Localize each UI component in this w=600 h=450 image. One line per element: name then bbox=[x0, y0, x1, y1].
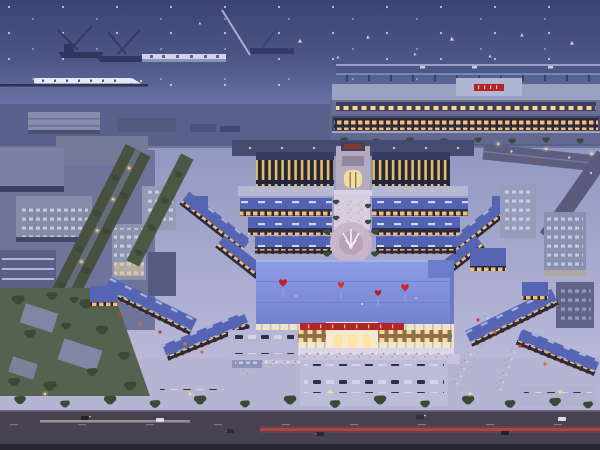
parking-row bbox=[232, 334, 294, 340]
colonnade-left bbox=[256, 152, 334, 190]
gate-arch-glow bbox=[344, 170, 362, 188]
car bbox=[558, 417, 566, 421]
car bbox=[81, 416, 89, 420]
gate-tower bbox=[332, 142, 374, 196]
terminal-arcade bbox=[334, 118, 598, 130]
market-hall-rows-right bbox=[372, 198, 468, 254]
parking-row bbox=[304, 392, 444, 398]
car bbox=[416, 415, 424, 419]
main-hall-roof bbox=[256, 260, 454, 324]
office-block bbox=[0, 148, 64, 188]
car bbox=[316, 432, 324, 436]
terminal-window-band bbox=[336, 102, 596, 111]
boulevard-road bbox=[0, 410, 600, 450]
parking-row bbox=[304, 378, 444, 384]
parking-row bbox=[160, 384, 224, 390]
taillight-streak bbox=[260, 428, 600, 431]
car bbox=[226, 429, 234, 433]
pier-glow bbox=[336, 73, 600, 75]
containers bbox=[190, 124, 216, 132]
dark-block bbox=[148, 252, 176, 296]
terminal-building bbox=[330, 78, 600, 144]
warehouse-2 bbox=[118, 118, 176, 132]
central-axis bbox=[232, 140, 474, 264]
car bbox=[156, 418, 164, 422]
train bbox=[34, 78, 132, 84]
colonnade-right bbox=[372, 152, 450, 190]
headlight-streak bbox=[40, 420, 190, 423]
train-headlight bbox=[140, 80, 142, 82]
parking-row bbox=[232, 348, 294, 354]
warehouse-roof bbox=[28, 112, 100, 132]
scene-canvas bbox=[0, 0, 600, 450]
white-ferry bbox=[142, 54, 226, 62]
main-hall-sign bbox=[300, 323, 404, 330]
parking-row bbox=[304, 364, 444, 370]
car bbox=[501, 431, 509, 435]
aerial-night-rendering: Aerial dusk rendering of a large illumin… bbox=[0, 0, 600, 450]
